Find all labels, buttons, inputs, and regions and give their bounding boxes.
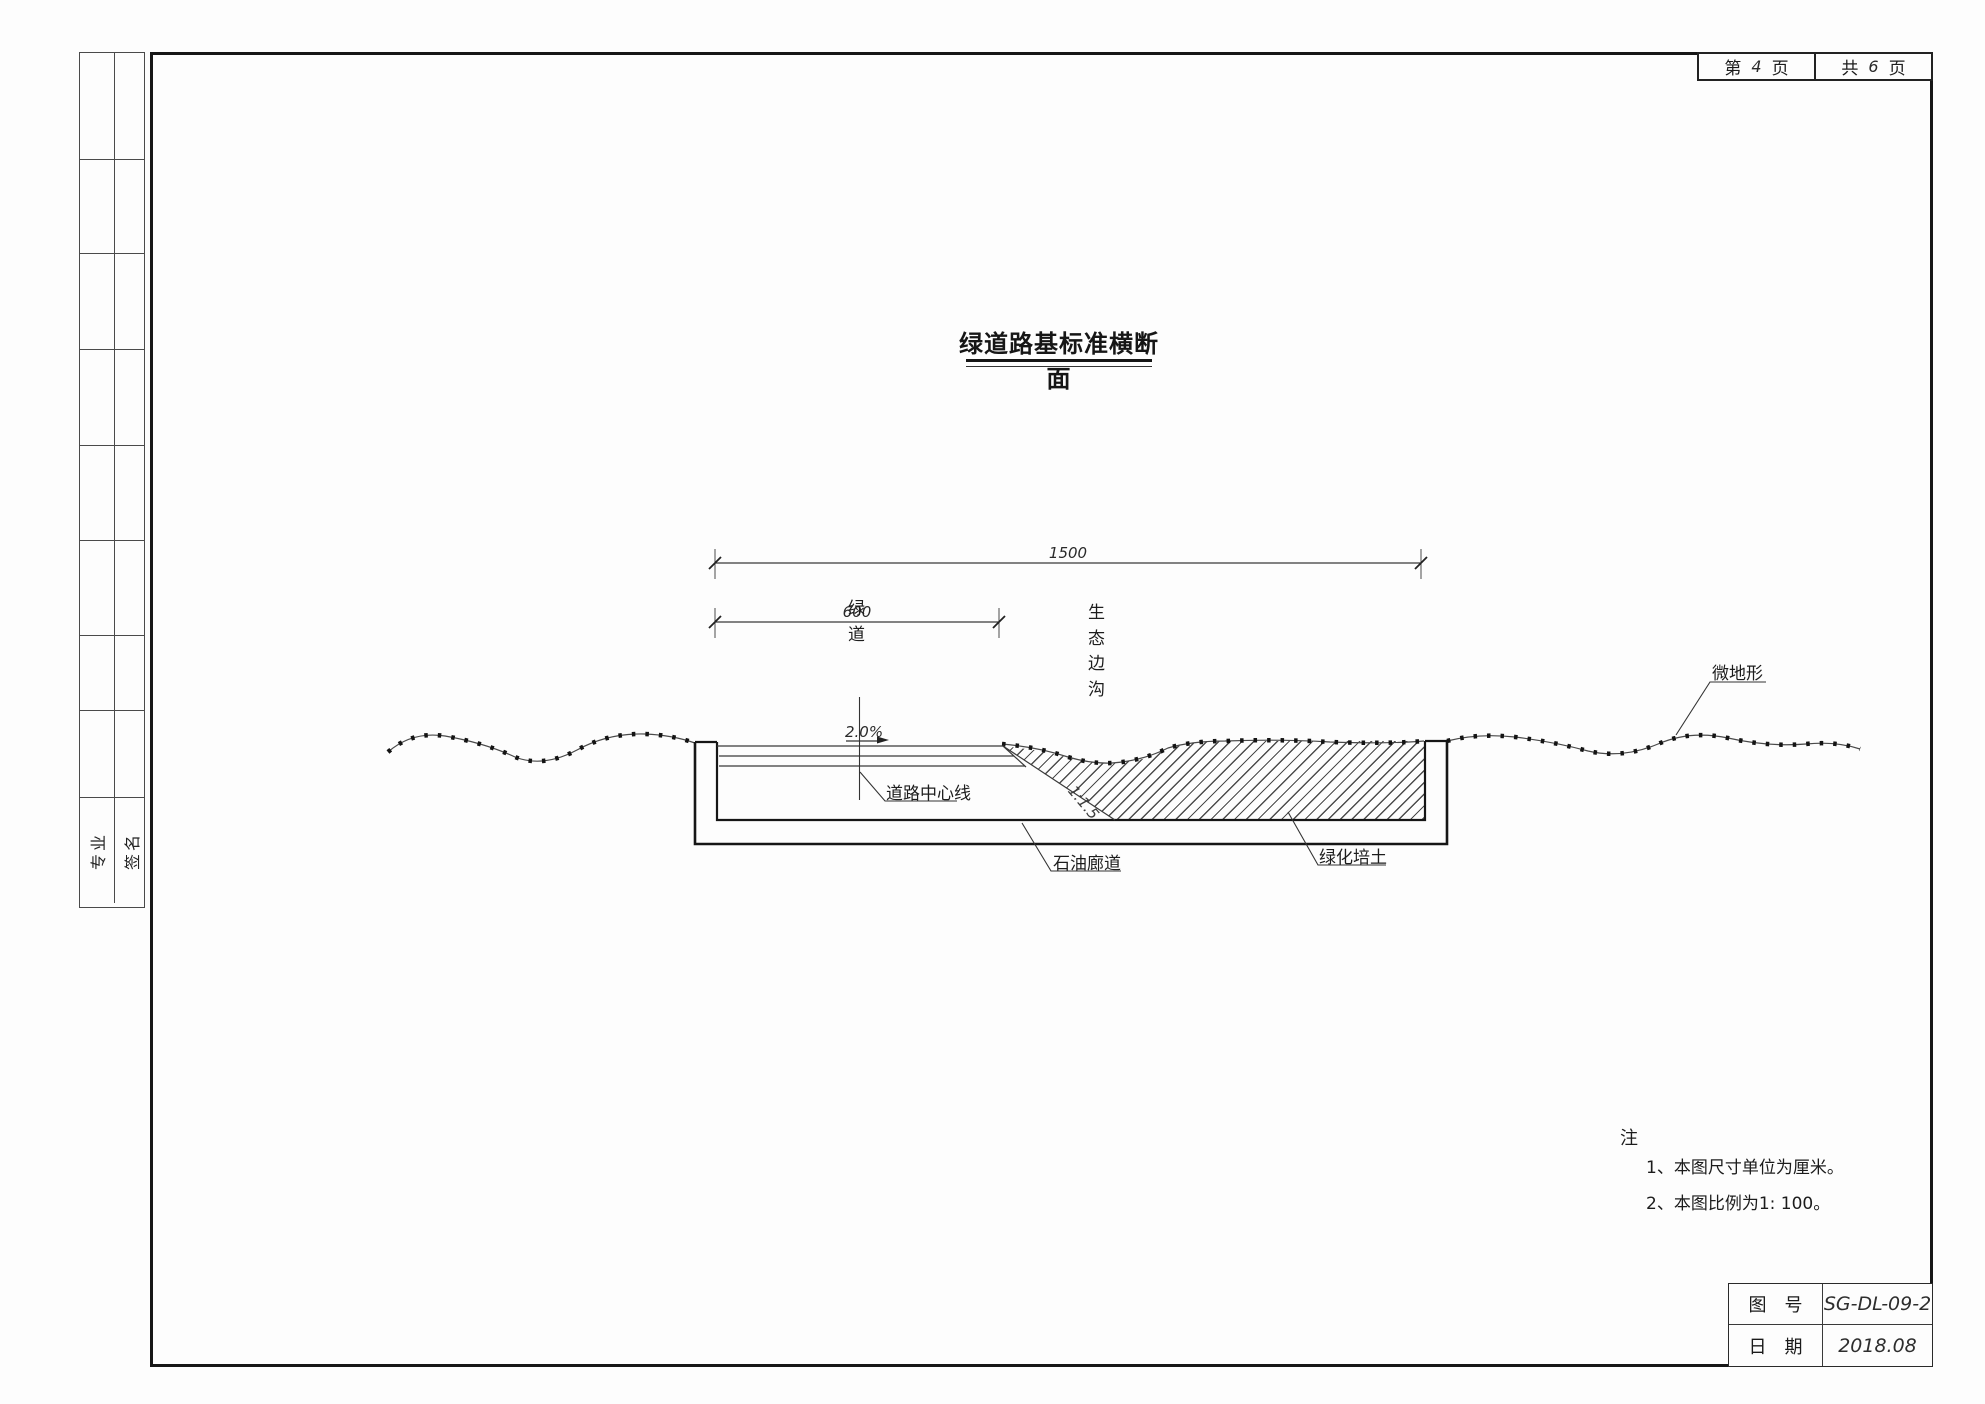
drawing-number-row: 图 号 SG-DL-09-2 xyxy=(1729,1284,1932,1325)
micro-terrain-label: 微地形 xyxy=(1712,659,1763,684)
date-label: 日 期 xyxy=(1729,1325,1823,1366)
greenway-label: 绿道 xyxy=(847,597,866,648)
note-item-2: 2、本图比例为1: 100。 xyxy=(1646,1189,1830,1214)
cross-slope-text: 2.0% xyxy=(845,723,879,741)
title-block: 图 号 SG-DL-09-2 日 期 2018.08 xyxy=(1728,1283,1933,1367)
drawing-number-value: SG-DL-09-2 xyxy=(1823,1284,1932,1324)
date-value: 2018.08 xyxy=(1823,1325,1932,1366)
terrain-line-swale xyxy=(1002,740,1424,763)
date-row: 日 期 2018.08 xyxy=(1729,1325,1932,1366)
road-centerline-label: 道路中心线 xyxy=(886,779,971,804)
terrain-dots-left xyxy=(388,734,695,761)
drawing-number-label: 图 号 xyxy=(1729,1284,1823,1324)
terrain-line-right xyxy=(1447,735,1860,754)
notes-heading: 注 xyxy=(1620,1124,1638,1150)
dim-1500-text: 1500 xyxy=(1028,544,1108,562)
terrain-line-left xyxy=(388,734,695,761)
micro-terrain-leader xyxy=(1676,682,1766,735)
drawing-sheet: 专业 签名 第 4 页 共 6 页 绿道路基标准横断面 xyxy=(0,0,1985,1404)
eco-ditch-label: 生态边沟 xyxy=(1087,601,1106,703)
corridor-inner-wall xyxy=(717,741,1425,820)
oil-corridor-label: 石油廊道 xyxy=(1053,849,1121,874)
note-item-1: 1、本图尺寸单位为厘米。 xyxy=(1646,1153,1844,1178)
greening-soil-label: 绿化培土 xyxy=(1319,843,1387,868)
terrain-dots-swale xyxy=(1002,740,1424,763)
